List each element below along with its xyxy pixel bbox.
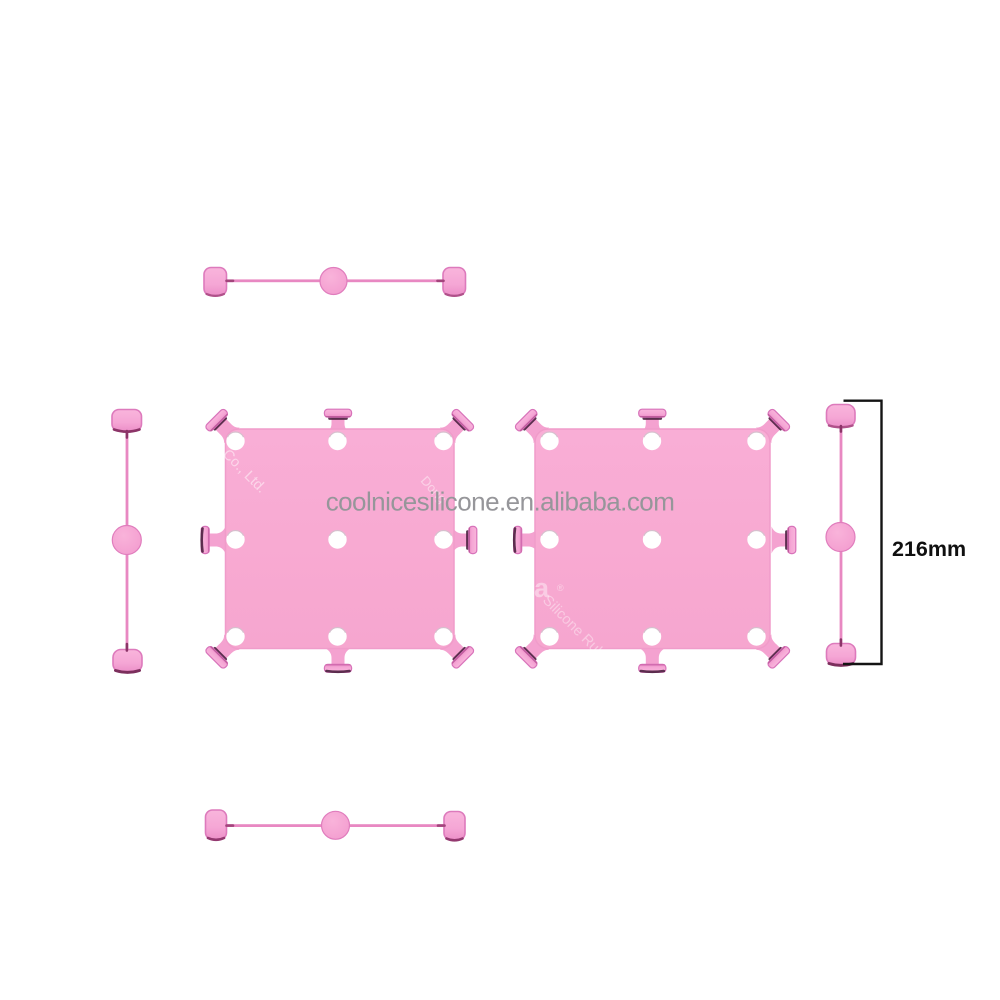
svg-text:®: ® [557,583,564,593]
svg-text:216mm: 216mm [892,537,966,561]
svg-text:coolnicesilicone.en.alibaba.co: coolnicesilicone.en.alibaba.com [326,487,675,517]
